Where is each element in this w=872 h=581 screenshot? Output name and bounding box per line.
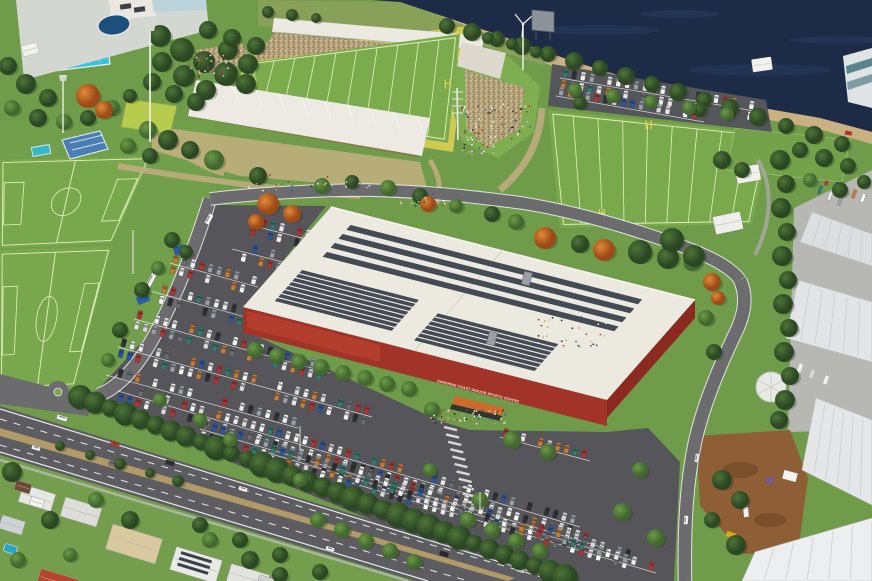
- scene-canvas: SUNSHINE COAST INDOOR SPORTS CENTRE: [0, 0, 872, 581]
- dirt-patch: [754, 513, 786, 527]
- aerial-render: SUNSHINE COAST INDOOR SPORTS CENTRE: [0, 0, 872, 581]
